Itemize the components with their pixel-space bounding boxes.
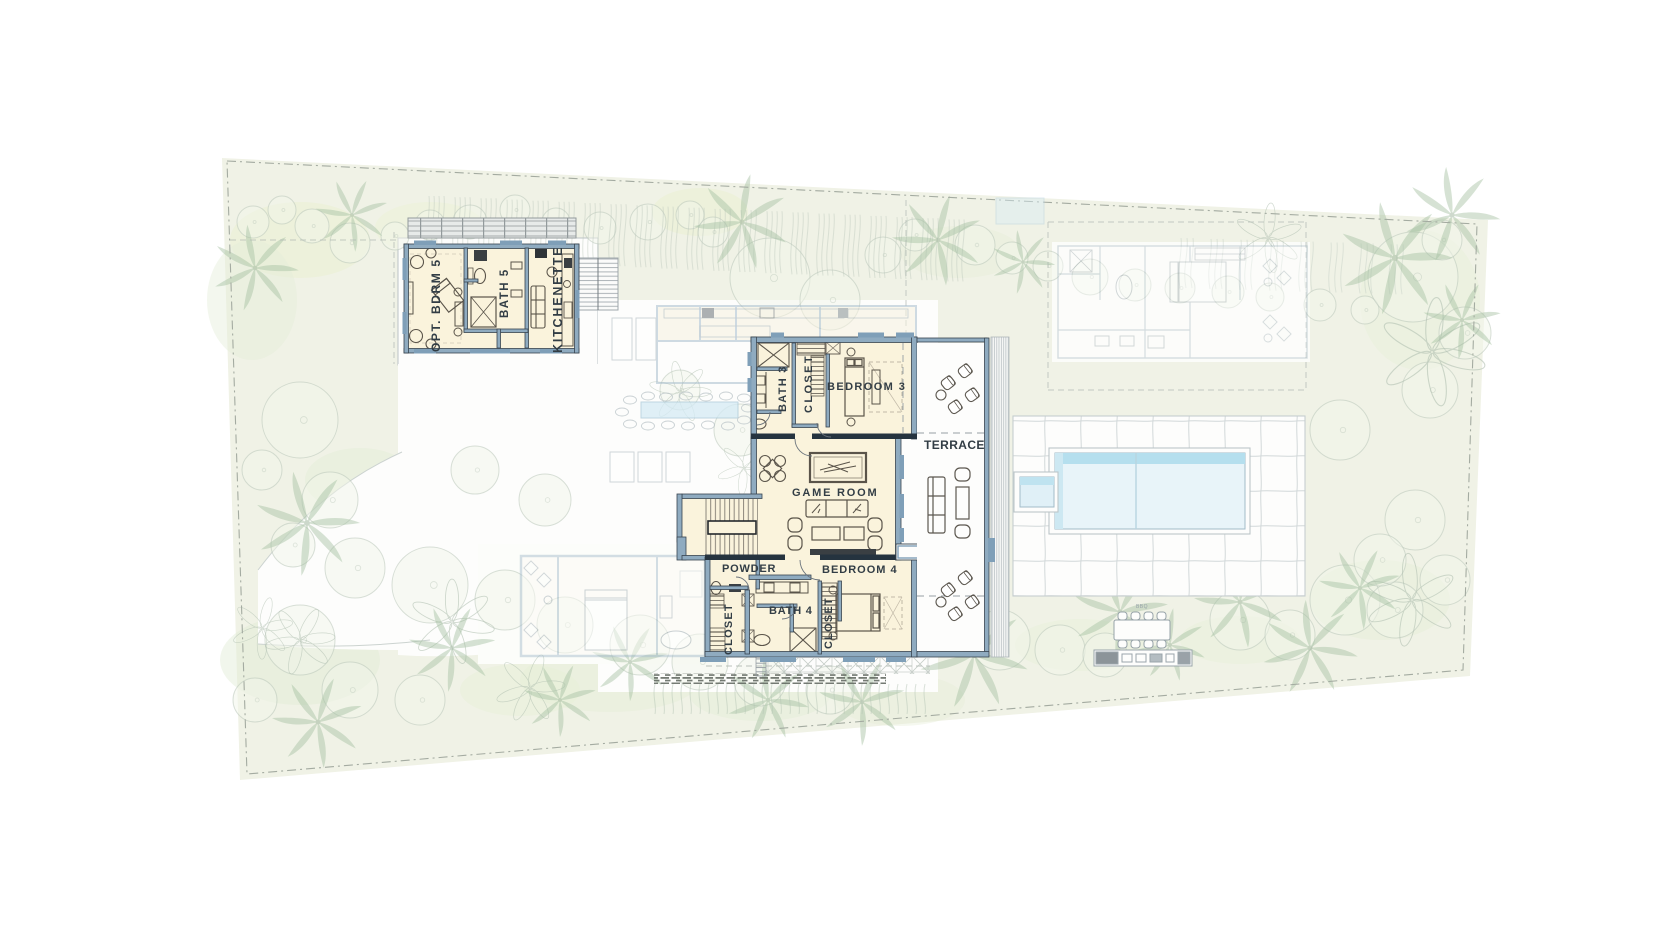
svg-text:POWDER: POWDER [722, 563, 776, 575]
svg-text:TERRACE: TERRACE [924, 438, 985, 452]
svg-text:CLOSET: CLOSET [803, 354, 815, 413]
svg-text:KITCHENETTE: KITCHENETTE [551, 246, 565, 353]
svg-text:CLOSET: CLOSET [823, 597, 835, 649]
svg-text:BATH 3: BATH 3 [777, 365, 789, 412]
svg-text:BEDROOM 3: BEDROOM 3 [827, 381, 906, 393]
svg-text:GAME ROOM: GAME ROOM [792, 487, 878, 499]
svg-text:BATH 4: BATH 4 [769, 605, 813, 617]
svg-text:BBQ: BBQ [1136, 604, 1148, 610]
svg-text:BATH 5: BATH 5 [499, 268, 511, 318]
svg-text:BEDROOM 4: BEDROOM 4 [822, 564, 898, 576]
svg-text:CLOSET: CLOSET [723, 603, 735, 655]
svg-text:OPT. BDRM 5: OPT. BDRM 5 [429, 258, 443, 352]
